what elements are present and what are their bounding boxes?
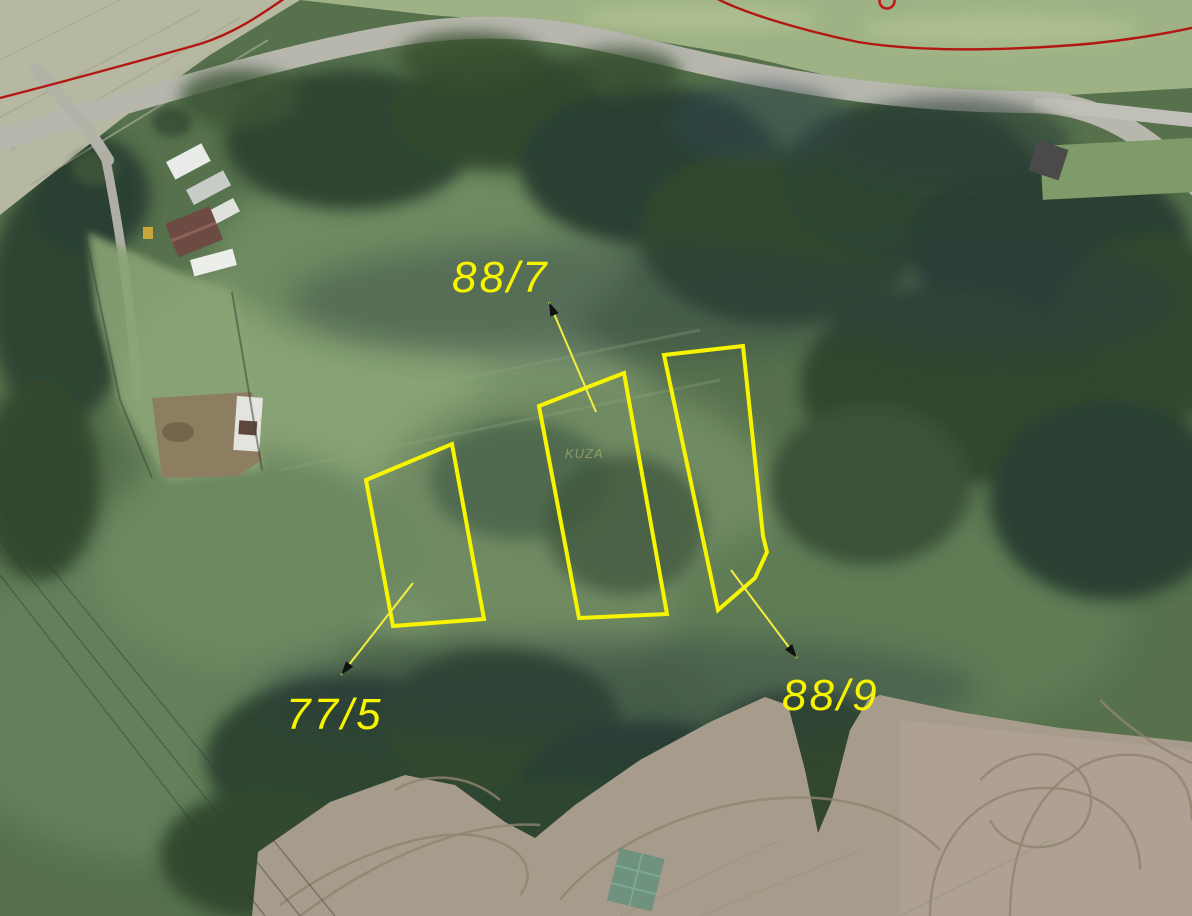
parcel-label-88-7[interactable]: 88/7 bbox=[452, 253, 550, 302]
red-boundary-line-1 bbox=[0, 0, 288, 98]
parcel-label-77-5[interactable]: 77/5 bbox=[286, 690, 384, 739]
parcel-arrow-88-7 bbox=[549, 302, 596, 412]
red-boundary-line-2 bbox=[712, 0, 1192, 49]
red-circle-marker bbox=[880, 0, 895, 9]
parcel-arrowhead-88-7 bbox=[545, 300, 559, 316]
parcel-label-88-9[interactable]: 88/9 bbox=[782, 671, 880, 720]
aerial-map-view: 77/588/788/9KUZA bbox=[0, 0, 1192, 916]
parcel-outline-77-5[interactable] bbox=[366, 444, 484, 626]
faint-map-text: KUZA bbox=[565, 446, 604, 461]
parcel-outline-88-9[interactable] bbox=[664, 346, 767, 610]
parcel-arrow-88-9 bbox=[731, 570, 797, 658]
parcel-outline-88-7[interactable] bbox=[539, 373, 667, 618]
cadastral-overlay: 77/588/788/9KUZA bbox=[0, 0, 1192, 916]
parcel-arrow-77-5 bbox=[341, 583, 413, 675]
